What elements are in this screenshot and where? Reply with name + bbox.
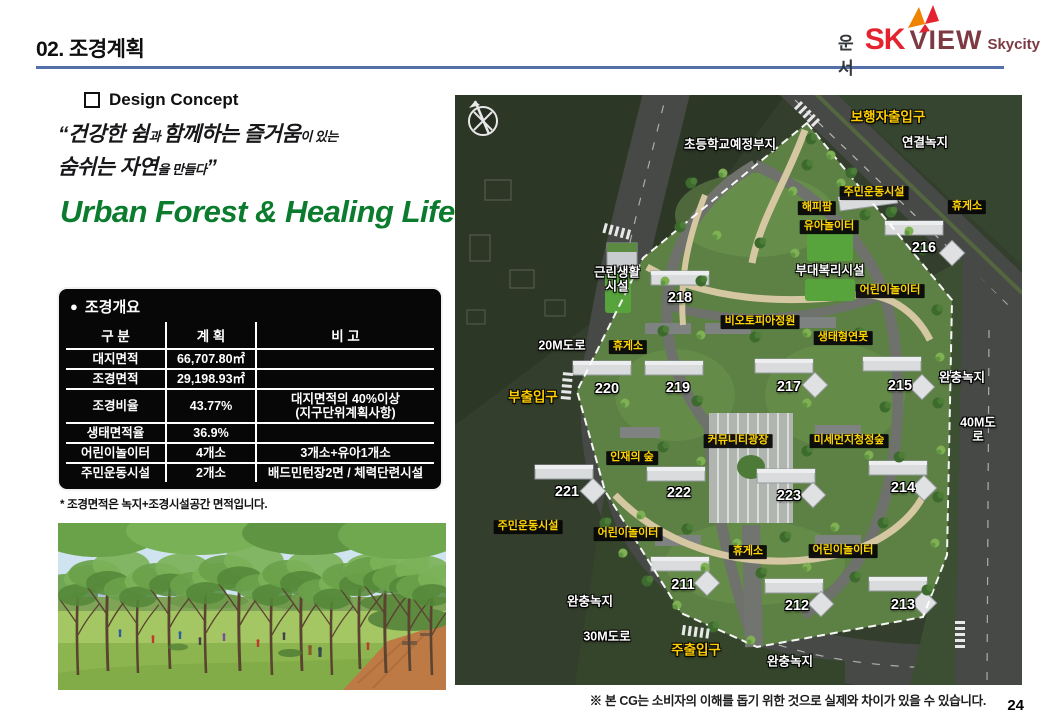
- overview-table: 구 분계 획비 고 대지면적66,707.80㎡조경면적29,198.93㎡조경…: [66, 322, 434, 482]
- map-label: 220: [595, 382, 619, 398]
- map-label: 커뮤니티광장: [704, 434, 773, 448]
- page-number: 24: [1007, 697, 1024, 714]
- design-concept-heading: Design Concept: [84, 90, 238, 110]
- map-label: 어린이놀이터: [594, 527, 663, 541]
- map-label: 초등학교예정부지: [684, 138, 776, 152]
- map-label: 완충녹지: [767, 655, 813, 669]
- overview-panel: ● 조경개요 구 분계 획비 고 대지면적66,707.80㎡조경면적29,19…: [57, 287, 443, 491]
- circle-bullet-icon: ●: [70, 299, 78, 314]
- overview-col-header: 계 획: [166, 322, 256, 349]
- quote-line1: “건강한 쉼과 함께하는 즐거움이 있는: [58, 119, 338, 152]
- logo: 운서 SK VIEW Skycity: [838, 28, 1040, 79]
- overview-row: 어린이놀이터4개소3개소+유아1개소: [66, 443, 434, 463]
- overview-row: 조경비율43.77%대지면적의 40%이상 (지구단위계획사항): [66, 389, 434, 423]
- map-label: 221: [555, 485, 579, 501]
- map-label: 211: [671, 578, 694, 594]
- map-label: 휴게소: [729, 545, 767, 559]
- overview-row: 생태면적율36.9%: [66, 423, 434, 443]
- map-label: 주민운동시설: [494, 520, 563, 534]
- overview-cell: 36.9%: [166, 423, 256, 443]
- page-title: 02. 조경계획: [36, 33, 144, 63]
- map-label: 비오토피아정원: [721, 315, 800, 329]
- map-label: 주민운동시설: [840, 186, 909, 200]
- slide: 02. 조경계획 운서 SK VIEW Skycity Design Conce…: [0, 0, 1040, 720]
- map-label: 어린이놀이터: [809, 544, 878, 558]
- map-label: 휴게소: [609, 340, 647, 354]
- overview-cell: 4개소: [166, 443, 256, 463]
- overview-footnote: * 조경면적은 녹지+조경시설공간 면적입니다.: [60, 496, 267, 512]
- overview-cell: 66,707.80㎡: [166, 349, 256, 369]
- overview-col-header: 비 고: [256, 322, 434, 349]
- map-label: 217: [777, 380, 801, 396]
- quote-segment: 이 있는: [300, 129, 338, 144]
- overview-cell: 주민운동시설: [66, 463, 166, 482]
- overview-cell: 3개소+유아1개소: [256, 443, 434, 463]
- overview-cell: 어린이놀이터: [66, 443, 166, 463]
- map-label: 부출입구: [508, 391, 558, 406]
- logo-sk: SK: [865, 28, 905, 52]
- map-label: 215: [888, 379, 912, 395]
- map-label: 주출입구: [671, 644, 721, 659]
- map-label: 40M도로: [956, 417, 1000, 444]
- map-label: 214: [891, 481, 915, 497]
- overview-cell: 대지면적: [66, 349, 166, 369]
- disclaimer: ※ 본 CG는 소비자의 이해를 돕기 위한 것으로 실제와 차이가 있을 수 …: [590, 690, 986, 709]
- map-label: 해피팜: [798, 201, 836, 215]
- map-label: 212: [785, 599, 809, 615]
- map-labels: 초등학교예정부지보행자출입구연결녹지주민운동시설해피팜휴게소유아놀이터216부대…: [455, 95, 1022, 685]
- map-label: 휴게소: [948, 200, 986, 214]
- map-label: 인재의 숲: [606, 451, 658, 465]
- overview-cell: [256, 349, 434, 369]
- overview-cell: 43.77%: [166, 389, 256, 423]
- sk-butterfly-icon: [904, 4, 944, 34]
- quote-segment: 을 만들다: [157, 162, 206, 177]
- quote-segment: 과: [149, 129, 164, 144]
- map-label: 연결녹지: [902, 136, 948, 150]
- map-label: 어린이놀이터: [856, 284, 925, 298]
- map-label: 완충녹지: [567, 595, 613, 609]
- concept-slogan: Urban Forest & Healing Life: [60, 194, 455, 230]
- overview-row: 대지면적66,707.80㎡: [66, 349, 434, 369]
- forest-illustration: [58, 523, 446, 690]
- map-label: 보행자출입구: [851, 111, 926, 126]
- overview-cell: [256, 423, 434, 443]
- map-label: 유아놀이터: [800, 220, 859, 234]
- overview-col-header: 구 분: [66, 322, 166, 349]
- map-label: 216: [912, 241, 936, 257]
- overview-header-row: 구 분계 획비 고: [66, 322, 434, 349]
- overview-title: ● 조경개요: [66, 293, 434, 322]
- site-plan: 초등학교예정부지보행자출입구연결녹지주민운동시설해피팜휴게소유아놀이터216부대…: [455, 95, 1022, 685]
- map-label: 213: [891, 598, 915, 614]
- design-concept-label: Design Concept: [109, 90, 238, 110]
- map-label: 미세먼지청정숲: [810, 434, 889, 448]
- map-label: 완충녹지: [939, 371, 985, 385]
- map-label: 생태형연못: [814, 331, 873, 345]
- map-label: 223: [777, 489, 801, 505]
- overview-cell: 조경비율: [66, 389, 166, 423]
- map-label: 30M도로: [583, 630, 630, 644]
- overview-cell: 29,198.93㎡: [166, 369, 256, 389]
- overview-cell: 대지면적의 40%이상 (지구단위계획사항): [256, 389, 434, 423]
- map-label: 218: [668, 291, 692, 307]
- overview-cell: 2개소: [166, 463, 256, 482]
- overview-cell: [256, 369, 434, 389]
- overview-cell: 생태면적율: [66, 423, 166, 443]
- quote-segment: 숨쉬는 자연: [58, 156, 157, 179]
- overview-row: 주민운동시설2개소배드민턴장2면 / 체력단련시설: [66, 463, 434, 482]
- map-label: 222: [667, 486, 691, 502]
- concept-quote: “건강한 쉼과 함께하는 즐거움이 있는 숨쉬는 자연을 만들다”: [58, 119, 338, 184]
- overview-title-text: 조경개요: [85, 296, 140, 317]
- quote-line2: 숨쉬는 자연을 만들다”: [58, 152, 338, 185]
- quote-segment: “건강한 쉼: [58, 123, 149, 146]
- quote-segment: 함께하는 즐거움: [163, 123, 300, 146]
- logo-prefix: 운서: [838, 29, 860, 79]
- square-bullet-icon: [84, 92, 100, 108]
- map-label: 부대복리시설: [795, 264, 864, 278]
- overview-cell: 배드민턴장2면 / 체력단련시설: [256, 463, 434, 482]
- overview-body: 대지면적66,707.80㎡조경면적29,198.93㎡조경비율43.77%대지…: [66, 349, 434, 482]
- overview-row: 조경면적29,198.93㎡: [66, 369, 434, 389]
- overview-cell: 조경면적: [66, 369, 166, 389]
- quote-segment: ”: [206, 156, 216, 179]
- map-label: 20M도로: [538, 339, 585, 353]
- logo-skycity: Skycity: [987, 36, 1040, 53]
- map-label: 근린생활 시설: [594, 267, 640, 294]
- map-label: 219: [666, 381, 690, 397]
